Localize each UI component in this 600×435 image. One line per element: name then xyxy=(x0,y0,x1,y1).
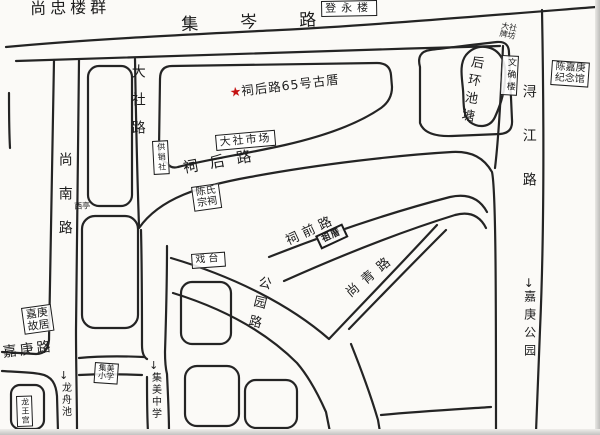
label-dashe-paifang: 大社 牌坊 xyxy=(499,22,518,42)
block-centre3 xyxy=(245,380,297,428)
direction-jiageng-park-text: 嘉庚公园 xyxy=(523,290,536,362)
block-upper-west xyxy=(88,66,132,206)
poi-box-wenquelou: 文确楼 xyxy=(500,55,520,96)
road-horiz-north xyxy=(79,356,144,358)
direction-longzhouchi: ↓ 龙舟池 xyxy=(58,370,70,418)
label-shangzhong-louqun: 尚忠楼群 xyxy=(30,0,110,18)
poi-box-opera-stage: 戏台 xyxy=(191,252,226,269)
down-arrow-icon: ↓ xyxy=(524,276,534,290)
poi-box-gongxiaoshe: 供销社 xyxy=(152,140,170,175)
block-lower-west xyxy=(82,216,138,328)
road-label-dashe: 大社路 xyxy=(130,64,145,148)
road-label-shangnan: 尚南路 xyxy=(57,152,72,254)
road-shangnan-east xyxy=(76,60,79,432)
poi-box-chenshi-zongci: 陈氏 宗祠 xyxy=(191,183,222,212)
road-south-west1 xyxy=(141,230,147,359)
road-label-xunjiang: 浔江路 xyxy=(521,84,536,216)
road-jicen-lower xyxy=(16,46,500,61)
map-page: 尚忠楼群 登永楼 集岑路 大社 牌坊 陈嘉庚 纪念馆 浔江路 ★祠后路65号古厝… xyxy=(0,0,600,435)
direction-jimei-middle: ↓ 集美中学 xyxy=(148,360,160,420)
down-arrow-icon: ↓ xyxy=(59,369,68,382)
down-arrow-icon: ↓ xyxy=(149,359,158,372)
road-centre-south-east xyxy=(351,344,380,432)
road-xunjiang-east xyxy=(536,10,543,432)
photo-edge-right xyxy=(595,0,600,435)
block-centre2 xyxy=(185,366,239,426)
block-southeast-bottom xyxy=(381,407,491,415)
photo-edge-bottom xyxy=(0,429,600,435)
label-xiting: 西亭 xyxy=(74,202,90,211)
poi-box-longwanggong: 龙王宫 xyxy=(16,395,33,427)
left-block-edge xyxy=(9,93,10,148)
road-south-east1 xyxy=(165,246,169,432)
poi-box-jiageng-guju: 嘉庚 故居 xyxy=(21,304,54,335)
direction-jiageng-park: ↓ 嘉庚公园 xyxy=(522,277,536,362)
poi-box-tan-kah-kee-memorial: 陈嘉庚 纪念馆 xyxy=(550,60,590,88)
direction-longzhouchi-text: 龙舟池 xyxy=(59,382,70,418)
direction-jimei-middle-text: 集美中学 xyxy=(149,372,160,420)
poi-box-jimei-primary: 集美 小学 xyxy=(94,362,119,384)
